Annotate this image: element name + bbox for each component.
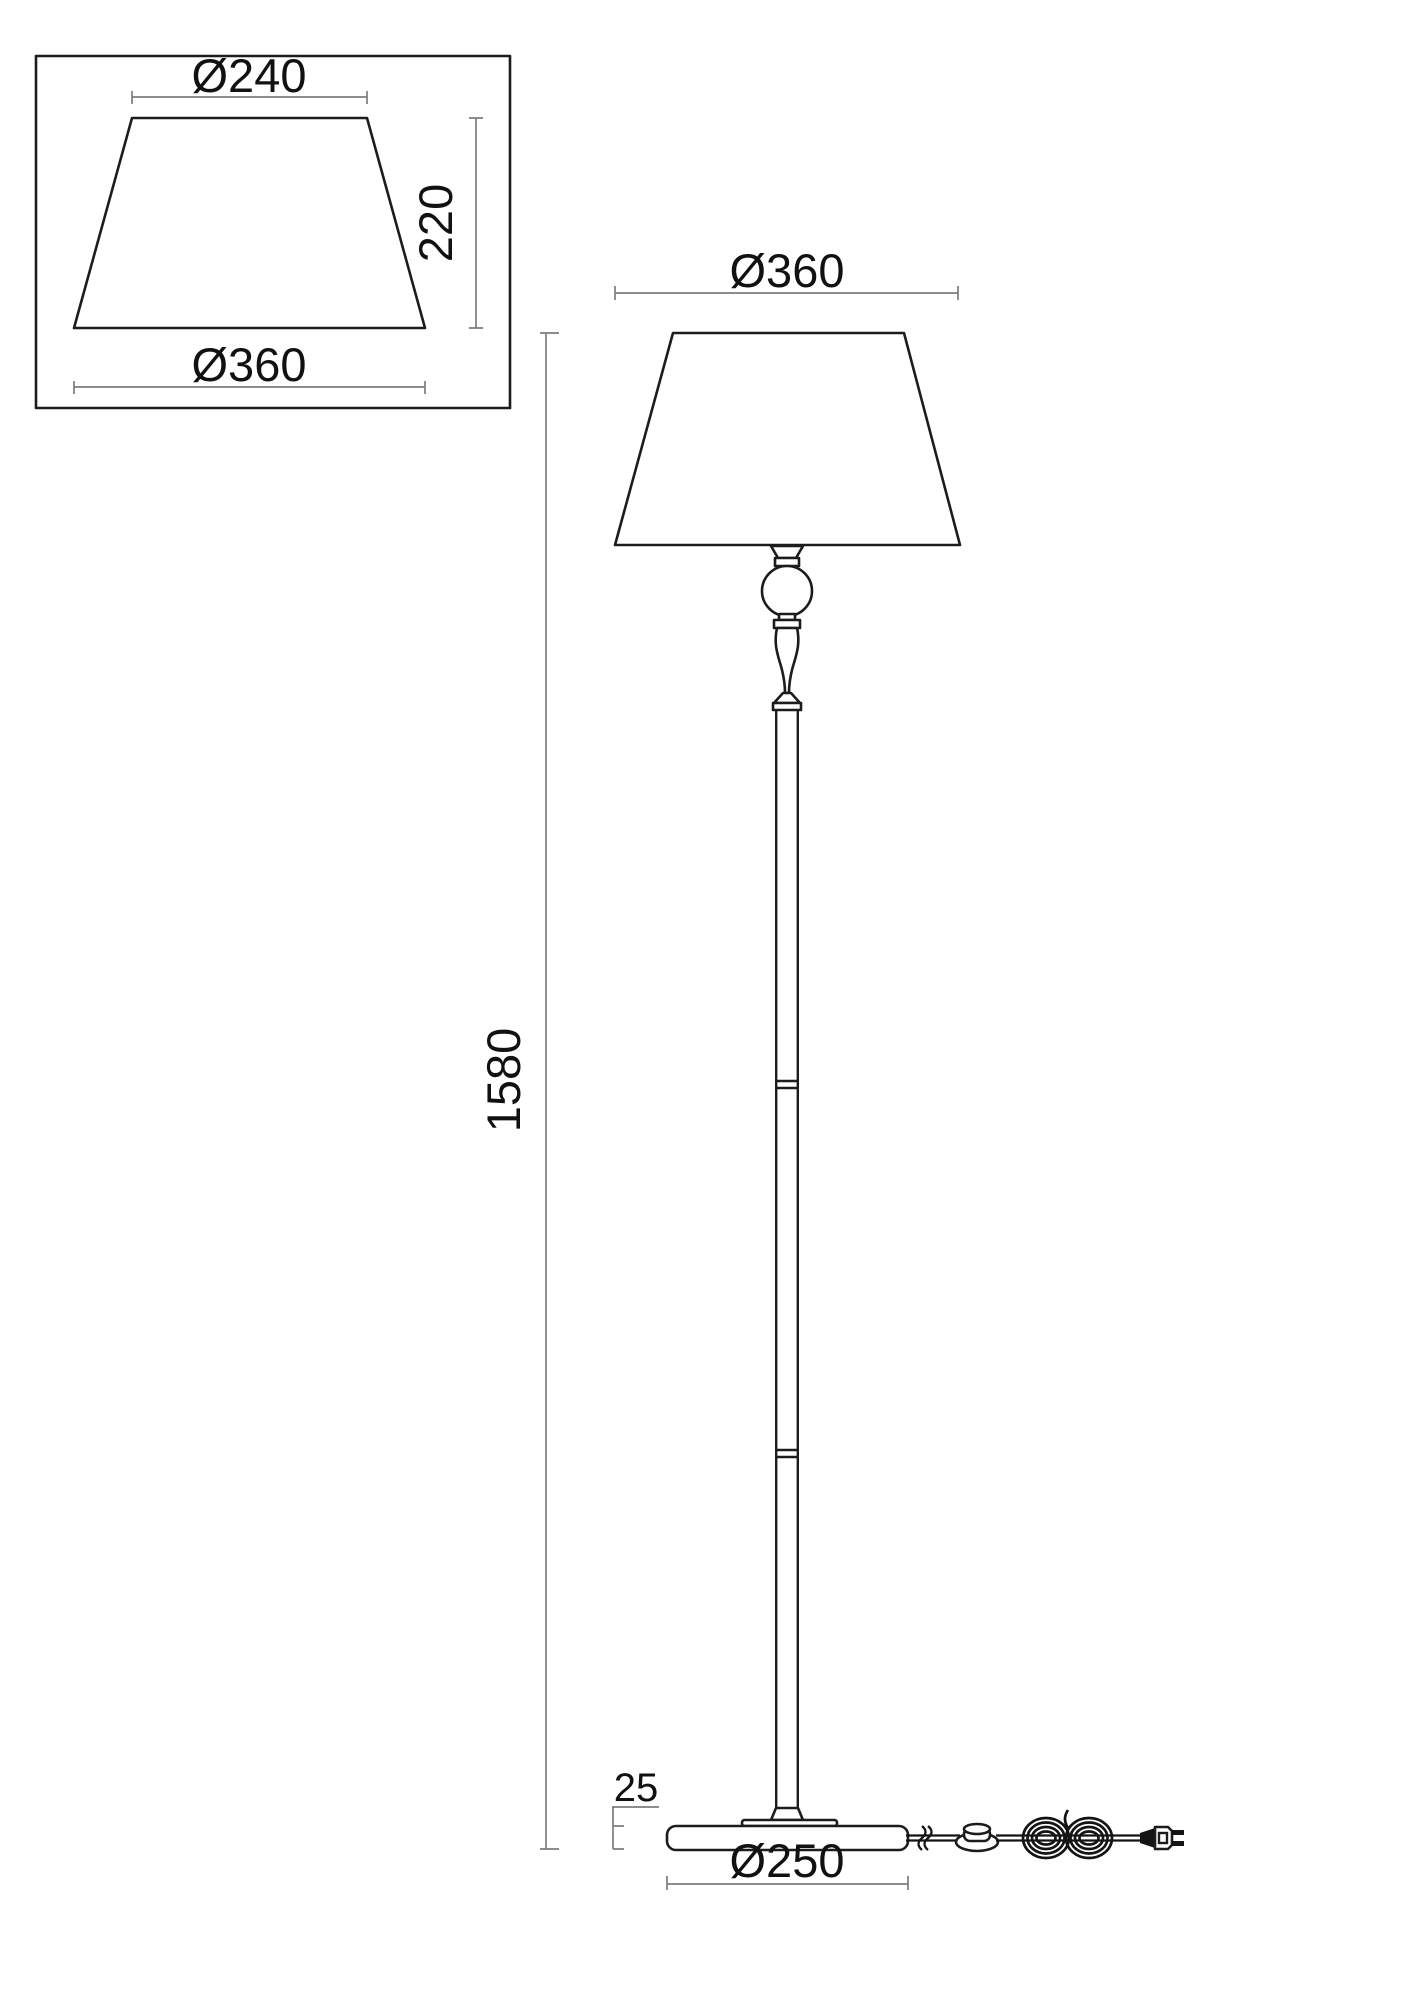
plug-boot [1140, 1828, 1155, 1848]
lamp-pole-joint-lower [776, 1450, 798, 1457]
stem-upper-flare [771, 546, 803, 558]
detail-dim-bottom-label: Ø360 [192, 338, 307, 391]
switch-button-cap [964, 1824, 990, 1834]
cord-coil [1023, 1810, 1112, 1858]
lamp-dim-base-thickness: 25 [612, 1766, 659, 1849]
detail-dim-top-label: Ø240 [192, 49, 307, 102]
stem-foot-ring [773, 703, 801, 710]
lamp-dim-height-label: 1580 [477, 1028, 530, 1133]
lamp-dim-base-thickness-line [612, 1807, 659, 1849]
lamp-pole [776, 710, 798, 1816]
lamp-dim-height-line [540, 333, 559, 1849]
coil-loop-right-4 [1080, 1832, 1099, 1845]
plug-prong-top [1172, 1830, 1184, 1835]
coil-cord-end [1065, 1810, 1068, 1828]
base-pole-collar [771, 1808, 803, 1820]
lamp-dim-overall-height: 1580 [477, 333, 559, 1849]
stem-foot-flare [774, 693, 800, 703]
lamp-stem-finial [762, 546, 812, 710]
cord-segment-base-to-switch [906, 1836, 960, 1841]
lamp-shade-outline [615, 333, 960, 545]
lamp-dim-shade-label: Ø360 [730, 244, 845, 297]
technical-drawing-page: Ø240 220 Ø360 1580 Ø360 [0, 0, 1413, 2000]
inline-foot-switch [956, 1824, 998, 1851]
lamp-dim-shade-diameter: Ø360 [615, 244, 958, 300]
coil-loop-right-1 [1066, 1818, 1112, 1858]
detail-shade-outline [74, 118, 425, 328]
lamp-dim-base-thickness-label: 25 [614, 1766, 659, 1810]
plug-prong-bottom [1172, 1841, 1184, 1846]
floor-lamp-drawing: 1580 Ø360 [477, 244, 1184, 1890]
stem-ball [762, 566, 812, 616]
floor-lamp-dimension-drawing: Ø240 220 Ø360 1580 Ø360 [0, 0, 1413, 2000]
coil-loop-left-1 [1023, 1818, 1069, 1858]
plug-body [1155, 1827, 1172, 1849]
shade-detail-panel: Ø240 220 Ø360 [36, 49, 510, 408]
power-cord-assembly [906, 1810, 1184, 1858]
power-plug [1140, 1827, 1184, 1849]
cord-break-symbol [919, 1826, 932, 1850]
lamp-pole-joint-upper [776, 1081, 798, 1088]
lamp-dim-base-diameter-label: Ø250 [730, 1834, 845, 1887]
detail-dim-height-label: 220 [409, 184, 462, 262]
coil-loop-left-4 [1037, 1832, 1056, 1845]
stem-vase [776, 628, 799, 693]
